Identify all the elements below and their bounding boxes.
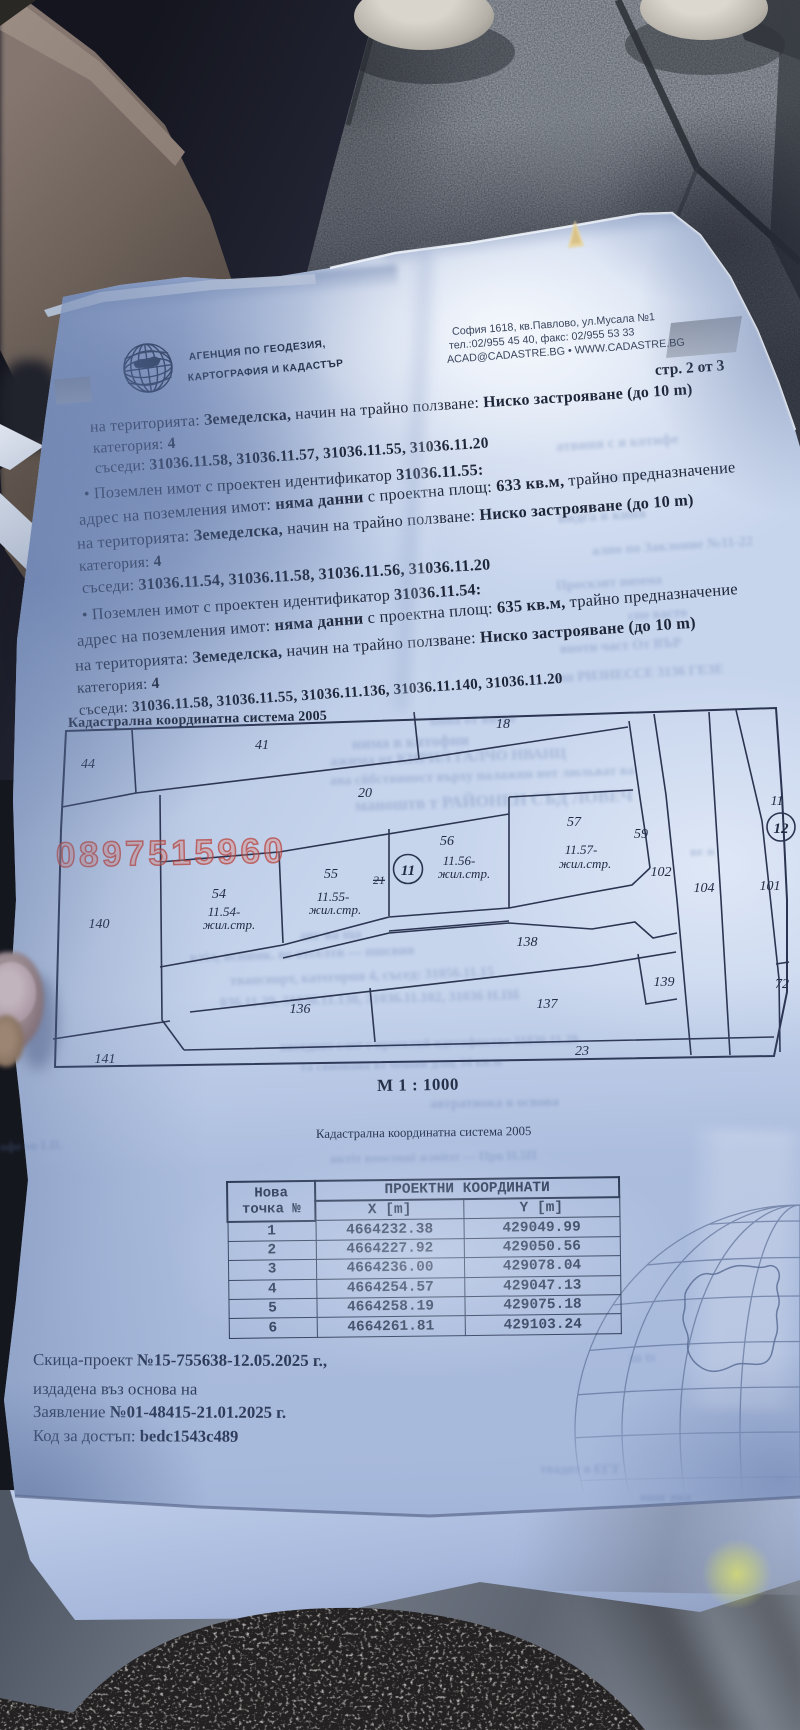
svg-text:44: 44 bbox=[81, 757, 95, 772]
svg-text:21: 21 bbox=[373, 873, 385, 887]
svg-text:59: 59 bbox=[634, 827, 648, 842]
svg-text:55: 55 bbox=[324, 867, 338, 882]
svg-text:139: 139 bbox=[654, 975, 675, 990]
svg-text:56: 56 bbox=[440, 834, 454, 849]
svg-text:жил.стр.: жил.стр. bbox=[438, 866, 490, 881]
svg-text:57: 57 bbox=[567, 815, 582, 830]
svg-text:жил.стр.: жил.стр. bbox=[309, 902, 361, 917]
svg-text:72: 72 bbox=[775, 977, 789, 992]
svg-text:54: 54 bbox=[212, 887, 226, 902]
svg-text:138: 138 bbox=[517, 935, 538, 950]
svg-text:101: 101 bbox=[760, 879, 781, 894]
svg-text:141: 141 bbox=[95, 1052, 116, 1067]
svg-text:136: 136 bbox=[290, 1002, 311, 1017]
svg-text:жил.стр.: жил.стр. bbox=[559, 856, 611, 871]
svg-text:жил.стр.: жил.стр. bbox=[203, 917, 255, 932]
svg-text:12: 12 bbox=[774, 821, 790, 837]
svg-text:140: 140 bbox=[89, 917, 110, 932]
svg-text:11: 11 bbox=[401, 863, 415, 879]
svg-text:137: 137 bbox=[537, 997, 559, 1012]
svg-text:18: 18 bbox=[496, 717, 510, 732]
svg-text:104: 104 bbox=[694, 881, 715, 896]
svg-text:41: 41 bbox=[255, 738, 269, 753]
svg-text:11: 11 bbox=[771, 794, 784, 809]
svg-text:20: 20 bbox=[358, 786, 372, 801]
svg-text:23: 23 bbox=[575, 1044, 589, 1059]
svg-text:11.57-: 11.57- bbox=[565, 842, 598, 857]
svg-text:102: 102 bbox=[651, 865, 672, 880]
